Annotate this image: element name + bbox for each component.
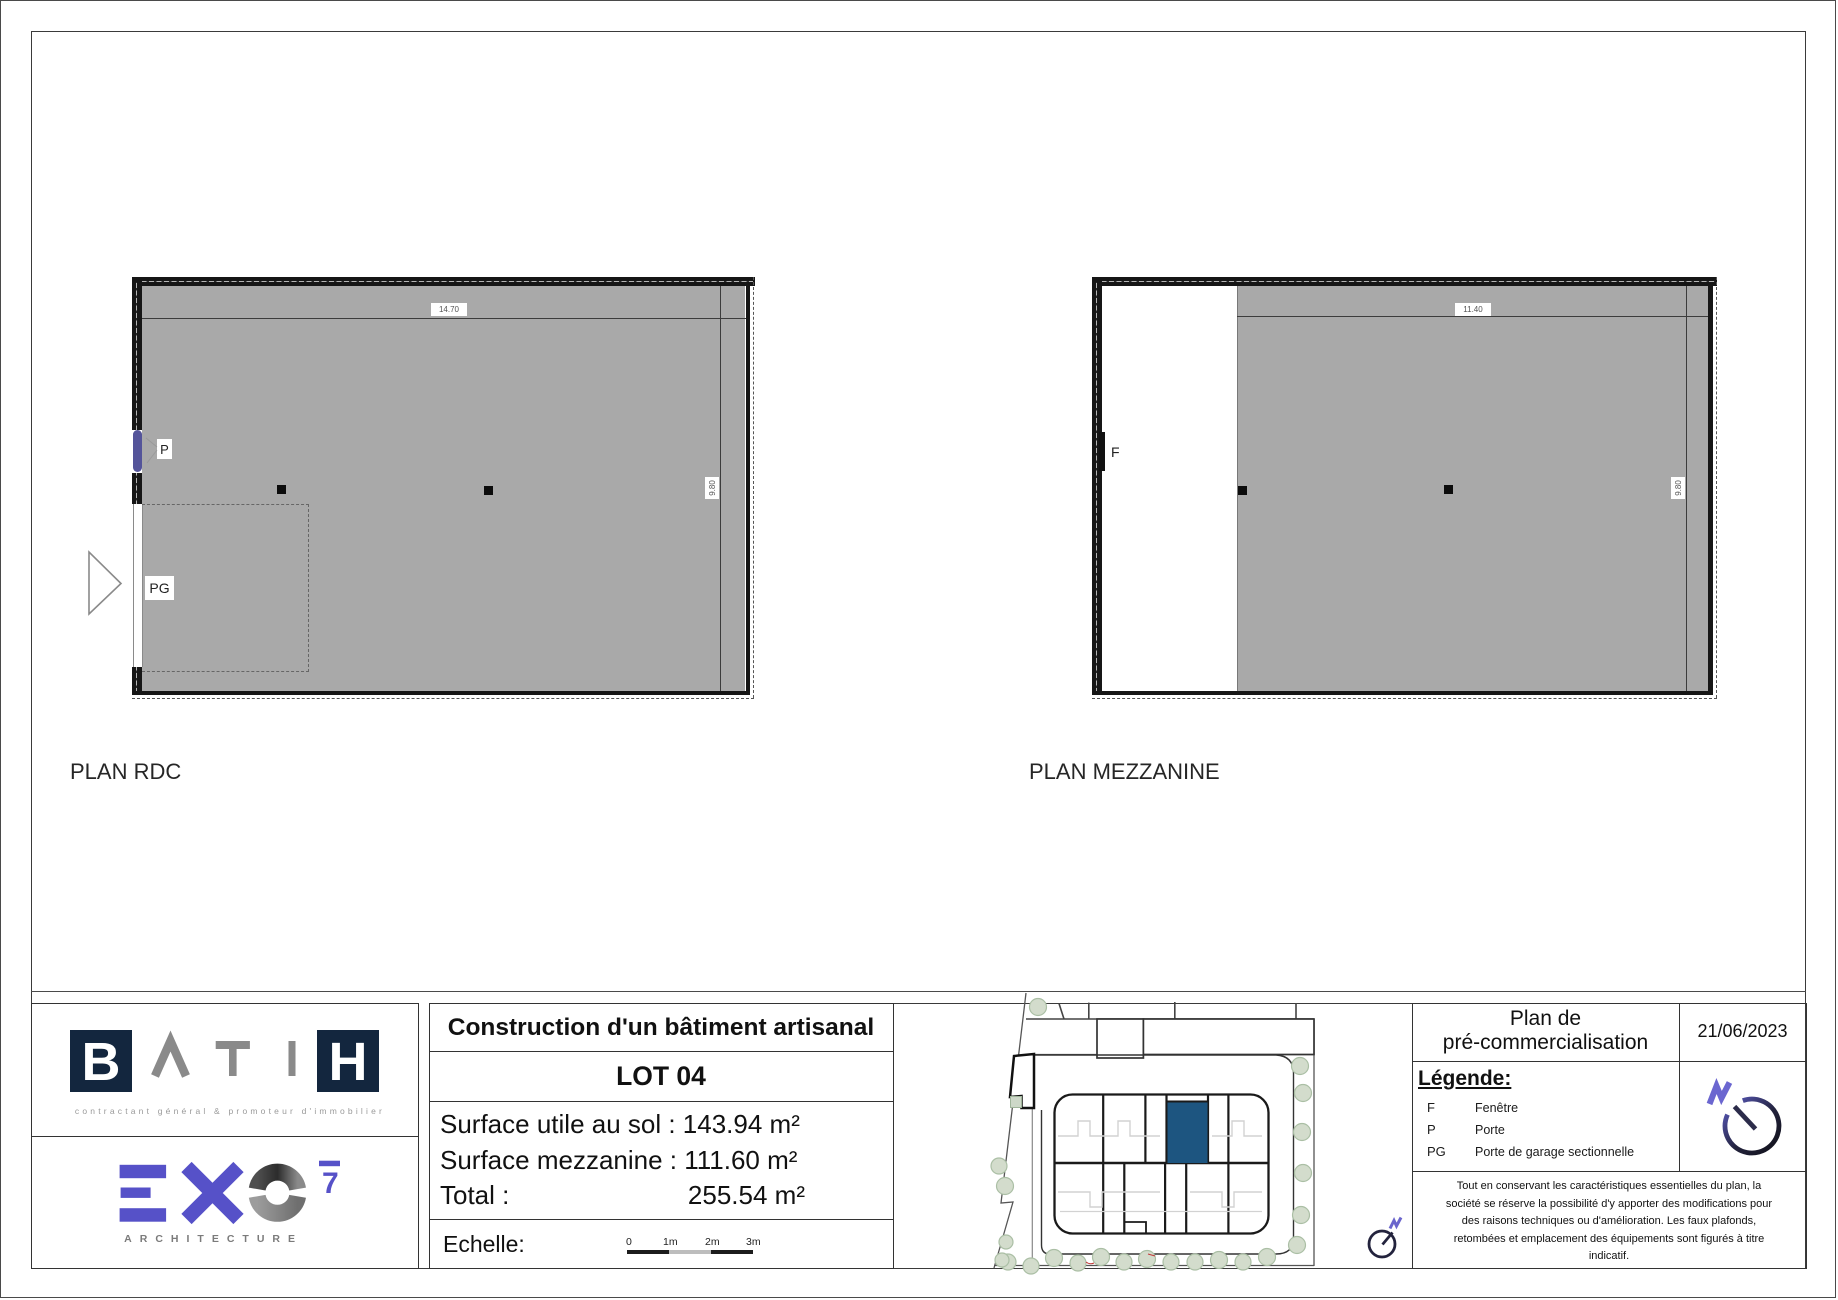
svg-text:7: 7 [322, 1167, 339, 1200]
svg-text:H: H [329, 1032, 368, 1092]
svg-text:contractant général & promoteu: contractant général & promoteur d'immobi… [75, 1106, 385, 1116]
svg-text:B: B [82, 1032, 121, 1092]
svg-text:ARCHITECTURE: ARCHITECTURE [124, 1233, 303, 1245]
